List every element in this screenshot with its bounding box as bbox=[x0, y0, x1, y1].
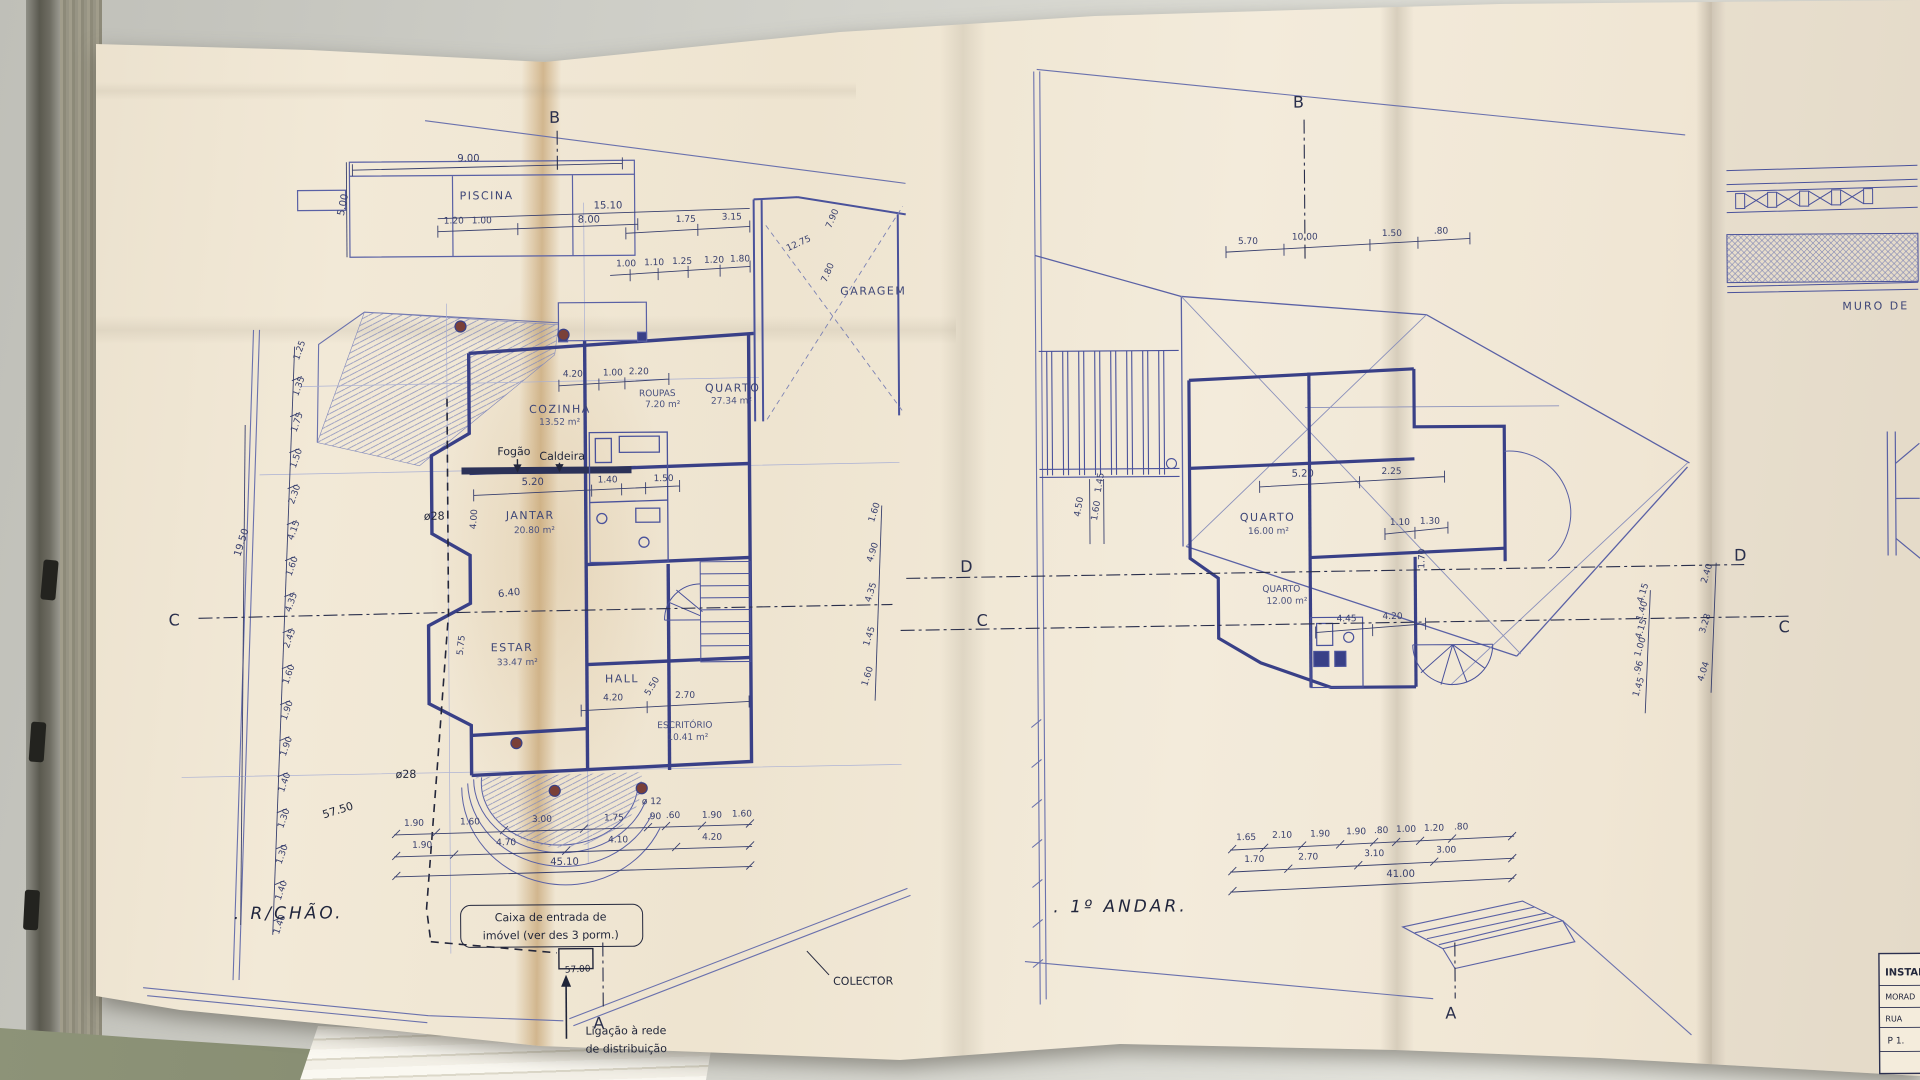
dim-label: 1.20 bbox=[1424, 824, 1444, 834]
section-letter-d: D bbox=[1734, 546, 1746, 565]
bathroom-fixtures bbox=[589, 432, 668, 563]
annotation-caixa-line2: imóvel (ver des 3 porm.) bbox=[483, 928, 619, 942]
dim-label: 1.70 bbox=[1417, 548, 1428, 569]
annotation-ligacao-line2: de distribuição bbox=[585, 1042, 667, 1056]
roof-outline bbox=[1035, 251, 1691, 660]
dim-line-chain bbox=[1644, 563, 1717, 713]
dim-label: 1.60 bbox=[281, 663, 297, 685]
room-area-jantar: 20.80 m² bbox=[514, 526, 555, 536]
dim-lines-top bbox=[610, 220, 750, 281]
dim-label: .60 bbox=[666, 811, 681, 821]
dim-label: 1.30 bbox=[275, 843, 291, 865]
section-letter-d: D bbox=[960, 557, 972, 576]
dim-label: 1.90 bbox=[1310, 829, 1330, 839]
dim-line-left-chain bbox=[237, 347, 306, 935]
pool-dim-lines bbox=[346, 156, 750, 257]
title-block: INSTAL MORAD RUA P 1. bbox=[1879, 953, 1920, 1073]
section-letter-b: B bbox=[549, 108, 560, 127]
dim-label: 1.60 bbox=[460, 817, 480, 827]
dim-label: 1.40 bbox=[598, 475, 618, 485]
section-letter-c: C bbox=[976, 611, 987, 630]
dim-label: 1.75 bbox=[604, 813, 624, 823]
dim-label: 1.50 bbox=[654, 474, 674, 484]
plan-title-andar: . 1º ANDAR. bbox=[1053, 896, 1187, 917]
room-area-quarto2: 12.00 m² bbox=[1266, 597, 1307, 607]
dim-label: 8.00 bbox=[578, 215, 600, 226]
dim-label: 1.45 bbox=[1631, 676, 1647, 698]
room-area-quarto: 27.34 m² bbox=[711, 396, 752, 406]
entrance-canopy bbox=[558, 302, 646, 342]
stove-wall bbox=[461, 466, 631, 474]
dim-label: 1.80 bbox=[730, 254, 750, 264]
dim-label: 4.15 bbox=[1636, 582, 1652, 604]
dim-label: 4.15 bbox=[1634, 618, 1650, 640]
dim-label: 4.20 bbox=[702, 833, 722, 843]
side-panel-drawings: MURO DE INSTAL MORAD RUA P 1. bbox=[1726, 165, 1920, 1074]
plan-title-rchao: . R/CHÃO. bbox=[234, 901, 344, 924]
room-label-quarto2: QUARTO bbox=[1262, 585, 1300, 595]
label-muro: MURO DE bbox=[1842, 299, 1909, 312]
dim-label: 57.00 bbox=[565, 964, 592, 976]
ligacao-arrow bbox=[561, 975, 571, 1039]
terrace-hatch-upper bbox=[316, 311, 559, 467]
dim-label: 3.00 bbox=[1436, 846, 1456, 856]
title-block-row: RUA bbox=[1885, 1014, 1902, 1023]
dim-label: 4.35 bbox=[284, 591, 300, 613]
title-block-header: INSTAL bbox=[1885, 967, 1920, 978]
dim-label: 1.00 bbox=[1396, 825, 1416, 835]
section-lines bbox=[195, 128, 895, 1013]
dim-label: 5.75 bbox=[456, 635, 468, 656]
dim-label: 1.00 bbox=[1633, 636, 1649, 658]
dim-label: 4.00 bbox=[469, 509, 480, 530]
annotation-caixa-line1: Caixa de entrada de bbox=[495, 910, 607, 924]
garage-plan: GARAGEM 12.75 7.90 7.80 bbox=[754, 196, 908, 421]
dim-label: 1.75 bbox=[676, 215, 696, 225]
dim-label: 1.60 bbox=[860, 665, 876, 687]
exterior-steps-sketch bbox=[1403, 901, 1575, 969]
section-lines-right bbox=[897, 116, 1791, 1002]
blueprint-drawing: PISCINA 9.00 5.00 1.20 1.00 8.00 15.10 G… bbox=[0, 0, 1920, 1080]
dim-label-total: 19.50 bbox=[232, 527, 251, 558]
room-label-quarto: QUARTO bbox=[705, 381, 761, 394]
title-block-row: P 1. bbox=[1887, 1036, 1904, 1046]
dim-label: 6.40 bbox=[497, 587, 520, 600]
dim-label: 1.90 bbox=[404, 819, 424, 829]
dim-line-chain bbox=[874, 506, 883, 701]
desk-photo: PISCINA 9.00 5.00 1.20 1.00 8.00 15.10 G… bbox=[0, 0, 1920, 1080]
dim-label: 1.60 bbox=[732, 809, 752, 819]
first-floor-plan: QUARTO 16.00 m² QUARTO 12.00 m² 5.70 10.… bbox=[856, 64, 1793, 1040]
ground-floor-plan: PISCINA 9.00 5.00 1.20 1.00 8.00 15.10 G… bbox=[137, 105, 912, 1058]
annotation-o28: ø28 bbox=[396, 768, 417, 781]
dim-label: 1.45 bbox=[1094, 472, 1107, 493]
stairs bbox=[664, 561, 751, 662]
dim-label: .80 bbox=[1434, 227, 1449, 237]
roof-fragment bbox=[1887, 431, 1920, 558]
dim-lines-bottom-right bbox=[1228, 832, 1516, 895]
section-letter-a: A bbox=[1445, 1004, 1456, 1023]
dim-label: 1.10 bbox=[644, 258, 664, 268]
section-letter-c: C bbox=[168, 610, 179, 629]
dim-label: 1.45 bbox=[862, 625, 878, 647]
dim-label: 1.90 bbox=[279, 735, 295, 757]
dim-label: 1.65 bbox=[1236, 833, 1256, 843]
dim-label: 7.80 bbox=[820, 262, 837, 285]
dim-label: 2.45 bbox=[282, 627, 298, 649]
dim-label: 4.15 bbox=[286, 519, 302, 541]
dim-label: 4.20 bbox=[563, 370, 583, 380]
room-area-roupas: 7.20 m² bbox=[645, 400, 681, 410]
dim-label: 1.00 bbox=[472, 216, 492, 226]
room-area-escritorio: 10.41 m² bbox=[667, 733, 708, 743]
property-boundary-right bbox=[1019, 65, 1692, 1040]
dim-label: 3.00 bbox=[532, 815, 552, 825]
dim-label-total: 45.10 bbox=[550, 857, 579, 868]
dim-label: 1.10 bbox=[1390, 518, 1410, 528]
dim-label: 3.15 bbox=[722, 213, 742, 223]
dim-label: 15.10 bbox=[594, 200, 623, 211]
dim-label: 5.50 bbox=[643, 675, 662, 698]
dim-label: 2.20 bbox=[629, 367, 649, 377]
room-area-cozinha: 13.52 m² bbox=[539, 418, 580, 428]
dim-label: 4.20 bbox=[603, 693, 623, 703]
dim-label: 12.75 bbox=[785, 234, 813, 254]
dim-label: 1.20 bbox=[444, 216, 464, 226]
room-label-quarto1: QUARTO bbox=[1240, 511, 1296, 524]
spiral-stair bbox=[1411, 451, 1572, 685]
annotation-caldeira: Caldeira bbox=[539, 450, 585, 463]
dim-label: 1.90 bbox=[412, 841, 432, 851]
dim-label: 4.70 bbox=[496, 838, 516, 848]
dim-label: 1.40 bbox=[277, 771, 293, 793]
section-letter-a: A bbox=[593, 1013, 604, 1032]
dim-label: 1.90 bbox=[280, 699, 296, 721]
dim-label: 5.20 bbox=[522, 477, 544, 488]
dim-label: .90 bbox=[647, 812, 662, 822]
room-label-escritorio: ESCRITÓRIO bbox=[657, 719, 712, 731]
dim-label: 5.70 bbox=[1238, 237, 1258, 247]
dim-label: 4.04 bbox=[1696, 660, 1712, 682]
dim-label: 3.10 bbox=[1364, 849, 1384, 859]
dim-label: 1.70 bbox=[1244, 855, 1264, 865]
dim-label: 1.40 bbox=[274, 879, 290, 901]
dim-label: 1.00 bbox=[616, 259, 636, 269]
dim-label: 1.30 bbox=[276, 807, 292, 829]
annotation-o12: ø 12 bbox=[642, 797, 662, 807]
dim-label: 1.30 bbox=[1420, 517, 1440, 527]
dim-label-total: 57.50 bbox=[321, 799, 355, 821]
room-label-jantar: JANTAR bbox=[505, 509, 555, 522]
room-label-hall: HALL bbox=[605, 672, 639, 685]
dim-label: 1.25 bbox=[292, 339, 308, 361]
room-label-piscina: PISCINA bbox=[460, 189, 514, 202]
room-label-garagem: GARAGEM bbox=[840, 284, 906, 297]
room-label-estar: ESTAR bbox=[491, 641, 534, 654]
dim-label: 4.90 bbox=[865, 541, 881, 563]
dim-label: 1.20 bbox=[704, 256, 724, 266]
bathroom-fixtures-first bbox=[1311, 617, 1363, 687]
roof-diagonals bbox=[1181, 293, 1689, 687]
wall-elevation bbox=[1726, 165, 1918, 292]
house-walls-first bbox=[1189, 368, 1506, 688]
dim-label: 2.10 bbox=[1272, 831, 1292, 841]
dim-label: 1.25 bbox=[672, 257, 692, 267]
title-block-row: MORAD bbox=[1885, 992, 1915, 1001]
room-label-cozinha: COZINHA bbox=[529, 403, 591, 416]
dim-label: 4.50 bbox=[1073, 496, 1086, 518]
dim-label: 9.00 bbox=[457, 153, 479, 164]
colector-leader bbox=[807, 951, 829, 975]
dim-label: 4.20 bbox=[1383, 612, 1403, 622]
dim-label: 2.25 bbox=[1382, 467, 1402, 477]
dim-label: 1.90 bbox=[702, 811, 722, 821]
dim-label: 2.70 bbox=[1298, 853, 1318, 863]
dim-label: .80 bbox=[1374, 826, 1389, 836]
pergola-beams bbox=[1039, 350, 1180, 477]
dim-label-total: 41.00 bbox=[1386, 869, 1415, 880]
room-area-estar: 33.47 m² bbox=[497, 658, 538, 668]
annotation-colector: COLECTOR bbox=[833, 974, 894, 987]
dim-label: 1.50 bbox=[289, 447, 305, 469]
dim-label: 1.00 bbox=[603, 368, 623, 378]
dim-label: 7.90 bbox=[824, 207, 841, 230]
room-area-quarto1: 16.00 m² bbox=[1248, 527, 1289, 537]
dim-label: 1.60 bbox=[1090, 500, 1103, 522]
dim-label: 4.35 bbox=[864, 581, 880, 603]
dim-label: 2.70 bbox=[675, 691, 695, 701]
dim-label: .80 bbox=[1454, 822, 1469, 832]
dim-label: 3.28 bbox=[1698, 612, 1714, 634]
section-letter-c: C bbox=[1779, 617, 1790, 636]
dim-label: 5.20 bbox=[1292, 469, 1314, 480]
section-letter-b: B bbox=[1293, 93, 1304, 112]
room-label-roupas: ROUPAS bbox=[639, 389, 676, 399]
dim-label: 1.60 bbox=[867, 501, 883, 523]
dim-label: .96 bbox=[1632, 659, 1646, 676]
annotation-fogao: Fogão bbox=[497, 445, 530, 458]
annotation-o28: ø28 bbox=[424, 510, 445, 523]
property-boundary bbox=[137, 117, 911, 1028]
dim-label: 1.90 bbox=[1346, 827, 1366, 837]
dim-label: 1.50 bbox=[1382, 229, 1402, 239]
dim-label: 5.00 bbox=[336, 193, 351, 217]
dim-label: 4.10 bbox=[608, 835, 628, 845]
